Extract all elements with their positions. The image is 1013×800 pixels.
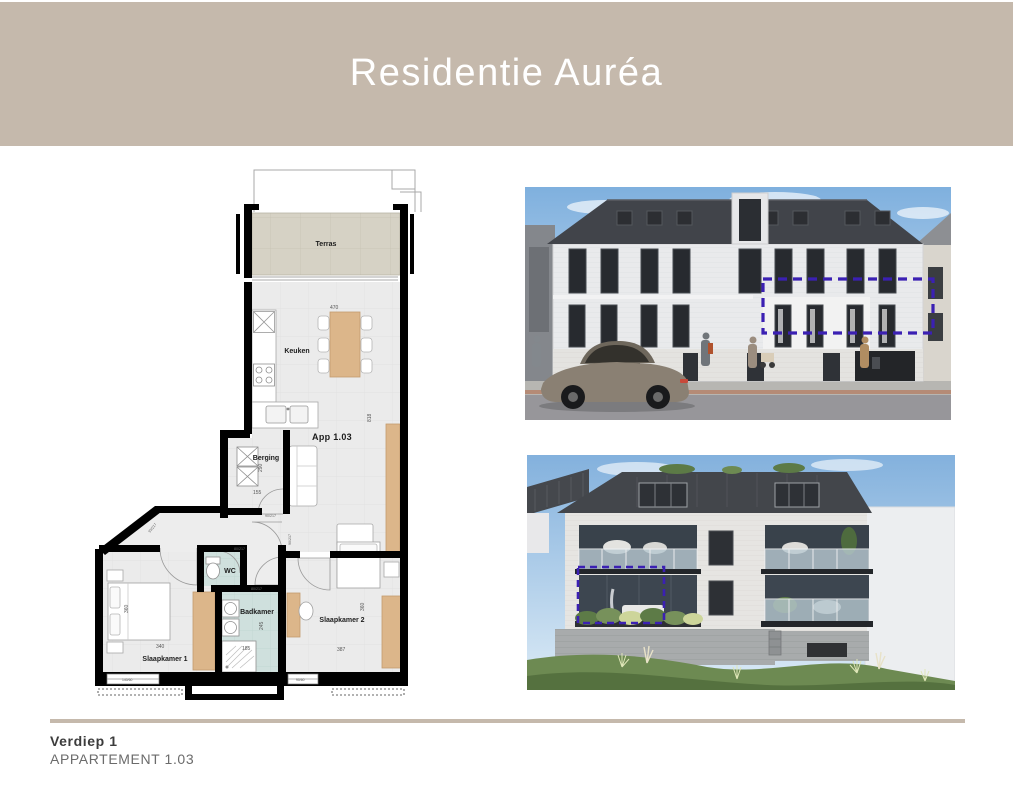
dim-sk2-d: 360 (360, 602, 366, 611)
street-view-svg (525, 187, 951, 420)
room-label-slaapkamer1: Slaapkamer 1 (142, 656, 187, 663)
room-label-berging: Berging (253, 455, 279, 462)
sofa (289, 446, 317, 506)
dim-sk2-w: 387 (337, 647, 346, 653)
stairs (769, 631, 781, 655)
brochure-page: Residentie Auréa (0, 0, 1013, 800)
dim-berging-w: 155 (253, 490, 262, 496)
lower-balcony-right (761, 575, 873, 627)
page-title: Residentie Auréa (0, 52, 1013, 95)
door-label-wc: 80/217 (234, 547, 245, 551)
floor-plan: Terras Keuken App 1.03 Berging WC Badkam… (88, 160, 440, 700)
window-label-sk2: 90/60 (296, 678, 305, 682)
kitchen-hob (254, 364, 275, 386)
dim-badkamer-d: 245 (259, 621, 265, 630)
dim-badkamer-w: 185 (242, 646, 251, 652)
wardrobe-sk2 (382, 596, 402, 668)
dim-living: 818 (367, 413, 373, 422)
room-label-wc: WC (224, 568, 236, 575)
garden-view-svg (527, 455, 955, 690)
wardrobe-sk1 (193, 592, 215, 670)
desk-chair (299, 602, 313, 620)
door-label-sk2: 90/217 (288, 534, 292, 545)
desk (287, 593, 300, 637)
floor-label: Verdiep 1 (50, 733, 118, 749)
room-label-terras: Terras (316, 241, 337, 248)
room-label-slaapkamer2: Slaapkamer 2 (319, 617, 364, 624)
window-label-sk1: 140/60 (122, 678, 132, 682)
door-label-badkamer: 80/217 (251, 587, 262, 591)
dim-berging-d: 290 (258, 463, 264, 472)
door-label-berging: 90/217 (265, 514, 276, 518)
dim-sk1-d: 360 (124, 604, 130, 613)
tv-cabinet (386, 424, 400, 556)
toilet (206, 557, 220, 579)
dim-dining: 470 (330, 305, 339, 311)
garden-view-render (527, 455, 955, 690)
apartment-label: APPARTEMENT 1.03 (50, 751, 194, 767)
apartment-id-label: App 1.03 (312, 432, 352, 442)
basement-window (807, 643, 847, 657)
dim-sk1-w: 340 (156, 644, 165, 650)
street-view-render (525, 187, 951, 420)
main-building (555, 463, 873, 665)
dining-table (330, 312, 360, 377)
floor-plan-svg: Terras Keuken App 1.03 Berging WC Badkam… (88, 160, 440, 700)
room-label-keuken: Keuken (284, 348, 309, 355)
shower (222, 641, 256, 672)
room-label-badkamer: Badkamer (240, 609, 274, 616)
footer-divider (50, 719, 965, 723)
